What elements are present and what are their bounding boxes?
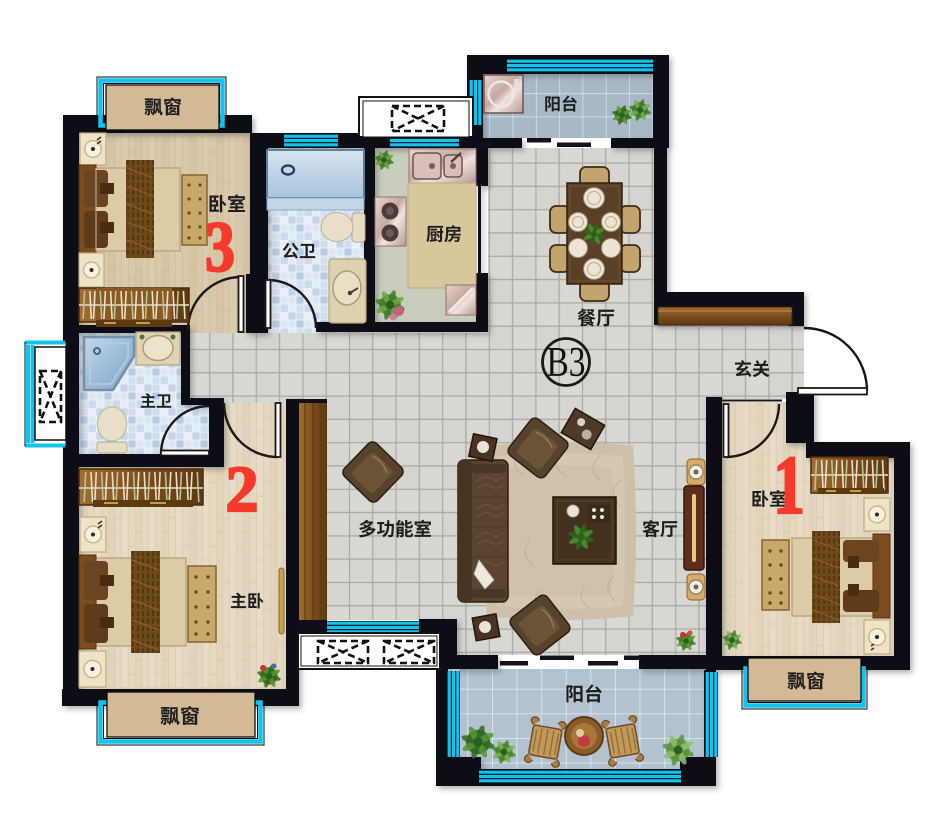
- svg-text:3: 3: [205, 207, 235, 287]
- svg-text:B3: B3: [547, 340, 586, 386]
- svg-text:2: 2: [226, 453, 259, 526]
- svg-text:1: 1: [773, 439, 805, 532]
